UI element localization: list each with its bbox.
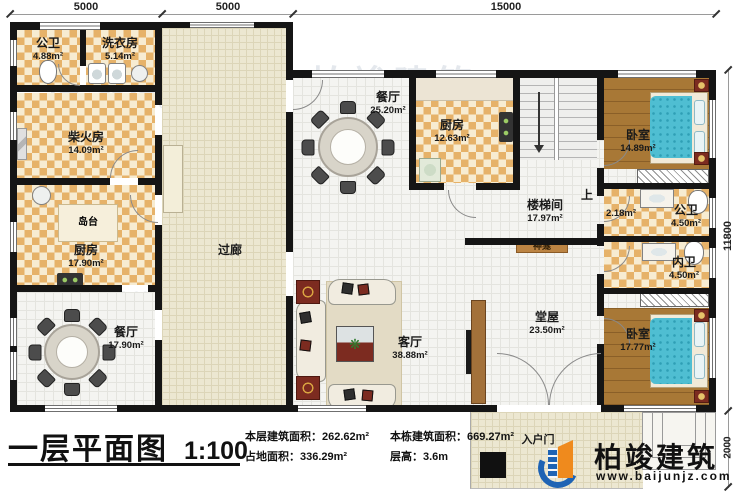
- stair-arrow-head: [534, 145, 544, 153]
- window: [618, 70, 696, 78]
- window: [298, 405, 366, 412]
- wall: [10, 178, 110, 185]
- wall: [597, 274, 604, 316]
- page-title: 一层平面图: [8, 424, 168, 468]
- window: [624, 405, 696, 412]
- cushion: [357, 283, 369, 295]
- dimension-label: 11800: [722, 212, 734, 260]
- wall: [138, 178, 162, 185]
- wall: [155, 22, 162, 105]
- dimension-tick: [724, 483, 732, 491]
- dimension-label: 5000: [200, 1, 256, 13]
- wardrobe-top: [637, 169, 709, 184]
- title-underline: [8, 463, 240, 466]
- window: [10, 40, 17, 66]
- brand-logo-icon: [536, 436, 592, 496]
- bed-pillow: [694, 354, 705, 379]
- room-label-bath-inner: 内卫4.50m²: [656, 255, 712, 282]
- firewood-fixture: [17, 128, 27, 160]
- dimension-line-top: [10, 14, 716, 15]
- dining-table-center: [330, 129, 366, 165]
- toilet: [39, 60, 57, 84]
- wall: [10, 85, 162, 92]
- brand-website: www.baijunjz.com: [596, 469, 732, 483]
- stat-floor-area: 本层建筑面积：262.62m²: [245, 428, 369, 444]
- title-row: 一层平面图 1:100: [8, 424, 248, 468]
- bed-pillow: [694, 322, 705, 347]
- chair: [340, 181, 356, 194]
- room-label-bedroom-top: 卧室14.89m²: [610, 128, 666, 155]
- kitchen-sink: [32, 186, 51, 205]
- window: [45, 405, 117, 412]
- room-label-laundry: 洗衣房5.14m²: [88, 36, 152, 63]
- kitchen-island: 岛台: [58, 204, 118, 242]
- room-label-kitchen-mid: 厨房12.63m²: [420, 118, 484, 145]
- wall: [286, 22, 293, 80]
- cushion: [299, 339, 311, 351]
- wall: [604, 236, 709, 242]
- room-label-dining-mid: 餐厅25.20m²: [356, 90, 420, 117]
- window: [10, 318, 17, 346]
- wall: [10, 285, 122, 292]
- laundry-sink: [131, 65, 148, 82]
- room-label-bath-left: 公卫4.88m²: [20, 36, 76, 63]
- chair: [29, 344, 42, 360]
- cushion: [362, 390, 374, 402]
- stat-floor-height: 层高：3.6m: [390, 448, 448, 464]
- chair: [64, 383, 80, 396]
- stair-divider: [554, 77, 559, 160]
- wall: [80, 30, 86, 66]
- wall: [148, 285, 162, 292]
- corridor-cabinet: [163, 145, 183, 213]
- porch-column: [480, 452, 506, 478]
- tv-cabinet: [471, 300, 486, 404]
- stat-footprint-area: 占地面积：336.29m²: [245, 448, 347, 464]
- dining-table-center: [56, 336, 88, 368]
- room-label-firewood: 柴火房14.09m²: [50, 130, 122, 157]
- stair-arrow: [538, 92, 540, 146]
- logo-building-blue: [548, 448, 557, 478]
- wall: [409, 183, 444, 190]
- washing-machine: [108, 63, 126, 84]
- wall: [286, 112, 293, 252]
- bed-pillow: [694, 100, 705, 125]
- room-label-corridor: 过廊: [204, 243, 256, 258]
- room-label-bedroom-bottom: 卧室17.77m²: [610, 327, 666, 354]
- chair: [302, 139, 315, 155]
- wall: [597, 168, 604, 196]
- side-table: [296, 376, 320, 400]
- scale-label: 1:100: [184, 437, 248, 466]
- side-table: [296, 280, 320, 304]
- chair: [340, 101, 356, 114]
- dimension-label: 2000: [723, 426, 734, 470]
- wall: [513, 78, 520, 190]
- floor-corridor: [162, 28, 286, 405]
- wall: [465, 238, 604, 245]
- plant-icon: ❋: [349, 336, 361, 352]
- stairs-up-area: 2.18m²: [600, 208, 642, 220]
- chair: [382, 139, 395, 155]
- wall: [286, 296, 293, 412]
- window: [709, 100, 716, 158]
- chair: [64, 309, 80, 322]
- logo-building-orange: [558, 440, 573, 478]
- dimension-label: 5000: [58, 1, 114, 13]
- window: [190, 22, 254, 28]
- kitchen-sink: [419, 158, 441, 182]
- stove: [499, 112, 513, 142]
- wall: [597, 78, 604, 140]
- dimension-tick: [712, 10, 720, 18]
- nightstand: [694, 390, 709, 403]
- window: [10, 112, 17, 140]
- washing-machine: [88, 63, 106, 84]
- room-label-living: 客厅38.88m²: [382, 335, 438, 362]
- island-label: 岛台: [59, 205, 117, 241]
- room-label-dining-left: 餐厅17.90m²: [95, 325, 157, 352]
- window: [436, 70, 496, 78]
- stairs-up-label: 上: [578, 188, 596, 203]
- window: [709, 318, 716, 378]
- cushion: [343, 388, 355, 400]
- window: [312, 70, 384, 78]
- window: [10, 352, 17, 380]
- tv-screen: [466, 330, 471, 374]
- floor-plan: 柏竣建筑www.baijunjz.com 柏竣建筑www.baijunjz.co…: [0, 0, 750, 499]
- nightstand: [694, 79, 709, 92]
- room-label-bath-right: 公卫4.50m²: [658, 203, 714, 230]
- cushion: [299, 311, 312, 324]
- dimension-label: 15000: [476, 1, 536, 13]
- window: [40, 22, 100, 30]
- stat-building-area: 本栋建筑面积：669.27m²: [390, 428, 514, 444]
- room-label-hall: 堂屋23.50m²: [518, 310, 576, 337]
- window: [10, 222, 17, 252]
- cushion: [341, 282, 353, 294]
- wall: [155, 225, 162, 310]
- nightstand: [694, 309, 709, 322]
- room-label-stairwell: 楼梯间17.97m²: [514, 198, 576, 225]
- nightstand: [694, 152, 709, 165]
- coffee-table: ❋: [336, 326, 374, 362]
- wall: [155, 135, 162, 195]
- entry-door-gap: [497, 405, 601, 412]
- wall: [604, 183, 709, 189]
- room-label-kitchen-left: 厨房17.90m²: [54, 243, 118, 270]
- kitchen-counter: [416, 77, 513, 101]
- wall: [604, 288, 709, 294]
